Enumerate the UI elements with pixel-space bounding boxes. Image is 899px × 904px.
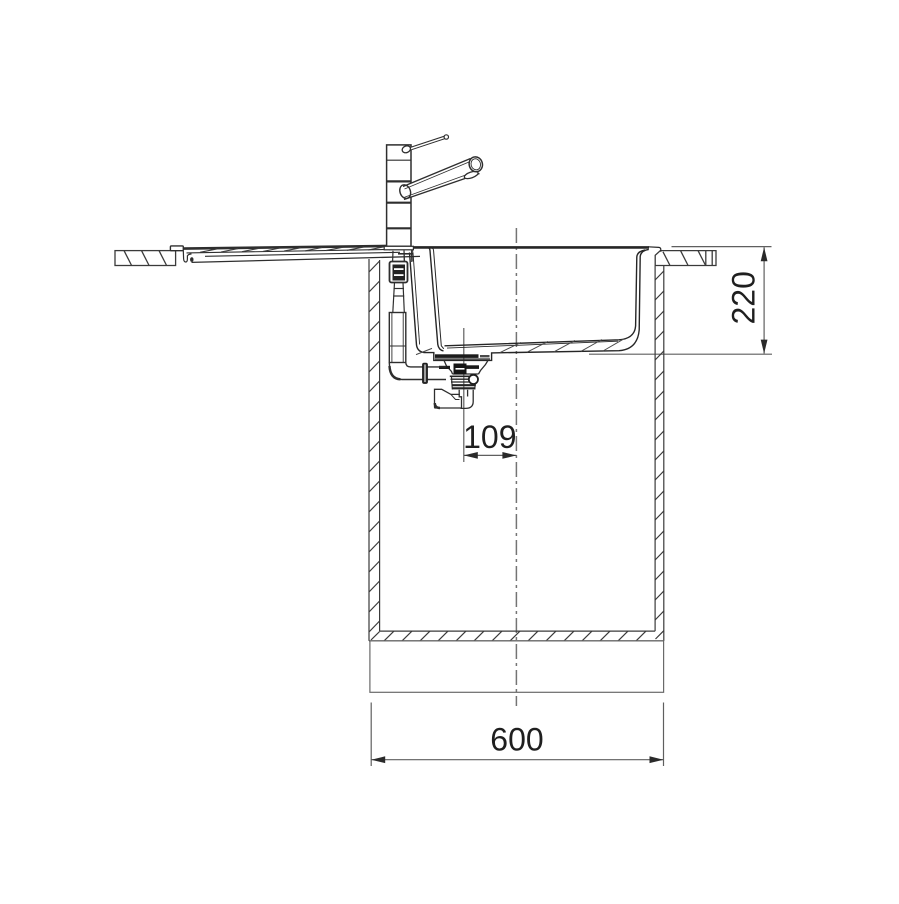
svg-text:220: 220	[726, 271, 762, 324]
svg-text:600: 600	[490, 721, 543, 757]
svg-text:109: 109	[463, 419, 516, 455]
